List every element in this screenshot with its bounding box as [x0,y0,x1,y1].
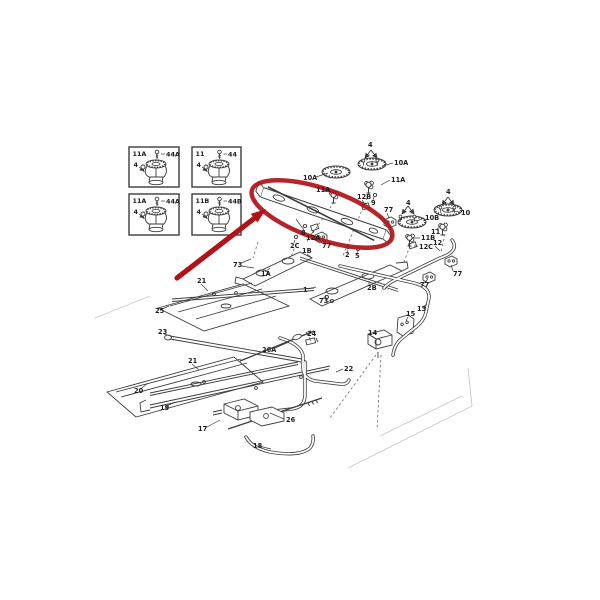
part-label-15: 15 [406,310,416,318]
part-label-73: 73 [319,297,329,305]
part-label-9: 9 [371,199,376,207]
leader-line [275,342,289,348]
leader-line [241,259,251,263]
part-label-21: 21 [188,357,198,365]
burner-head-10b [398,216,426,228]
part-label-73: 73 [233,261,243,269]
part-label-14: 14 [368,329,378,337]
part-label-2: 2 [345,251,350,259]
inset-qty-label: 4 [134,208,139,216]
part-label-1A: 1A [261,270,272,278]
leader-line [205,420,220,428]
inset-fastener-number: 44 [228,151,237,159]
part-label-5: 5 [355,252,360,260]
part-label-4: 4 [368,141,373,149]
part-label-4: 4 [446,188,451,196]
part-label-11A: 11A [316,186,331,194]
inset-panel-11A: 11A44A4 [129,147,180,187]
inset-fastener-number: 44B [228,198,242,206]
inset-part-number: 11A [133,150,147,158]
inset-panel-11B: 11B44B4 [192,194,242,235]
part-label-26A: 26A [262,346,277,354]
part-label-77: 77 [420,281,430,289]
inset-part-number: 11A [133,197,147,205]
part-label-10A: 10A [394,159,409,167]
part-label-12B: 12B [357,193,371,201]
part-label-12C: 12C [419,243,433,251]
inset-qty-label: 4 [197,161,202,169]
part-label-13: 13 [417,305,427,313]
bracket-15 [397,315,414,336]
leader-line [336,369,343,372]
inset-part-number: 11B [196,197,210,205]
part-label-19: 19 [160,404,170,412]
panel-25 [158,283,289,331]
part-label-77: 77 [453,270,463,278]
part-label-12: 12 [433,239,443,247]
part-label-22: 22 [344,365,354,373]
igniter-11a-right [365,181,374,193]
exploded-parts-diagram: 11A44A41144411A44A411B44B4 410A11A10A11A… [0,0,600,600]
fitting-24 [306,338,318,345]
leader-line [381,180,390,185]
part-label-1B: 1B [302,247,312,255]
inset-part-number: 11 [196,150,205,158]
part-label-18: 18 [253,442,263,450]
burner-head-10a-left [322,166,350,178]
part-label-21: 21 [197,277,207,285]
leader-line [241,266,254,268]
inset-panel-11: 11444 [192,147,241,187]
part-label-10A: 10A [303,174,318,182]
inset-qty-label: 4 [197,208,202,216]
parts-diagram-page: 11A44A41144411A44A411B44B4 410A11A10A11A… [0,0,600,600]
part-label-4: 4 [406,199,411,207]
leader-line [201,284,208,291]
part-label-20: 20 [134,387,144,395]
part-label-26: 26 [286,416,296,424]
inset-fastener-number: 44A [166,151,180,159]
igniter-11b [406,234,415,246]
part-label-12A: 12A [306,234,321,242]
part-label-77: 77 [384,206,394,214]
inset-fastener-number: 44A [166,198,180,206]
part-label-11A: 11A [391,176,406,184]
part-label-10B: 10B [425,214,439,222]
part-label-24: 24 [307,330,317,338]
part-label-2C: 2C [290,242,300,250]
part-label-1: 1 [303,286,308,294]
part-label-77: 77 [322,242,332,250]
inset-panel-11A: 11A44A4 [129,194,180,235]
part-label-10: 10 [461,209,471,217]
part-label-25: 25 [155,307,165,315]
part-label-23: 23 [158,328,168,336]
part-label-17: 17 [198,425,208,433]
inset-qty-label: 4 [134,161,139,169]
part-label-2B: 2B [367,284,377,292]
inset-panels: 11A44A41144411A44A411B44B4 [129,147,242,235]
